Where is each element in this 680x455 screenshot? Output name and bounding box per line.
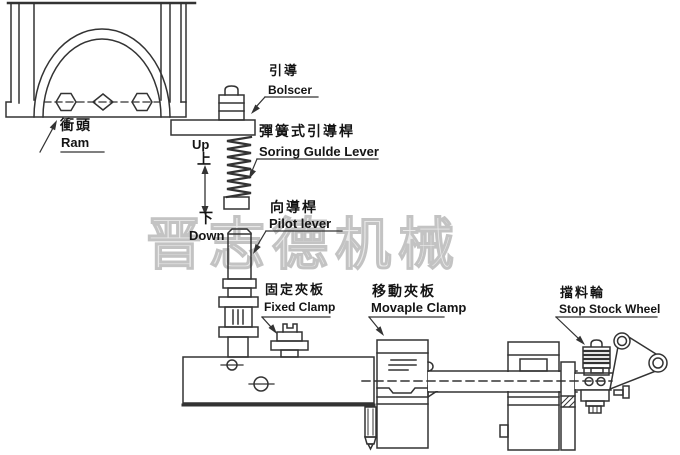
- stop-wheel-label-zh: 擋料輪: [560, 286, 605, 300]
- diagram-canvas: 晋志德机械: [0, 0, 680, 455]
- ram-label-zh: 衝頭: [60, 118, 92, 133]
- movable-clamp-label-en: Movaple Clamp: [371, 301, 466, 315]
- up-label-zh: 上: [197, 152, 213, 167]
- fixed-clamp-label-zh: 固定夾板: [265, 283, 325, 297]
- spring-guide-label-en: Soring Gulde Lever: [259, 145, 379, 159]
- down-label-zh: 下: [199, 211, 215, 226]
- down-label-en: Down: [189, 229, 224, 243]
- bolscer-label-zh: 引導: [269, 64, 299, 78]
- spring-guide-label-zh: 彈簧式引導桿: [259, 124, 355, 139]
- stop-wheel-label-en: Stop Stock Wheel: [559, 303, 660, 316]
- ram-label-en: Ram: [61, 136, 89, 150]
- bolscer-label-en: Bolscer: [268, 84, 312, 97]
- pilot-lever-label-en: Pilot lever: [269, 217, 331, 231]
- diagram-linework: [0, 0, 680, 455]
- pilot-lever-label-zh: 向導桿: [270, 200, 318, 215]
- up-label-en: Up: [192, 138, 209, 152]
- movable-clamp-label-zh: 移動夾板: [372, 284, 436, 299]
- fixed-clamp-label-en: Fixed Clamp: [264, 301, 335, 314]
